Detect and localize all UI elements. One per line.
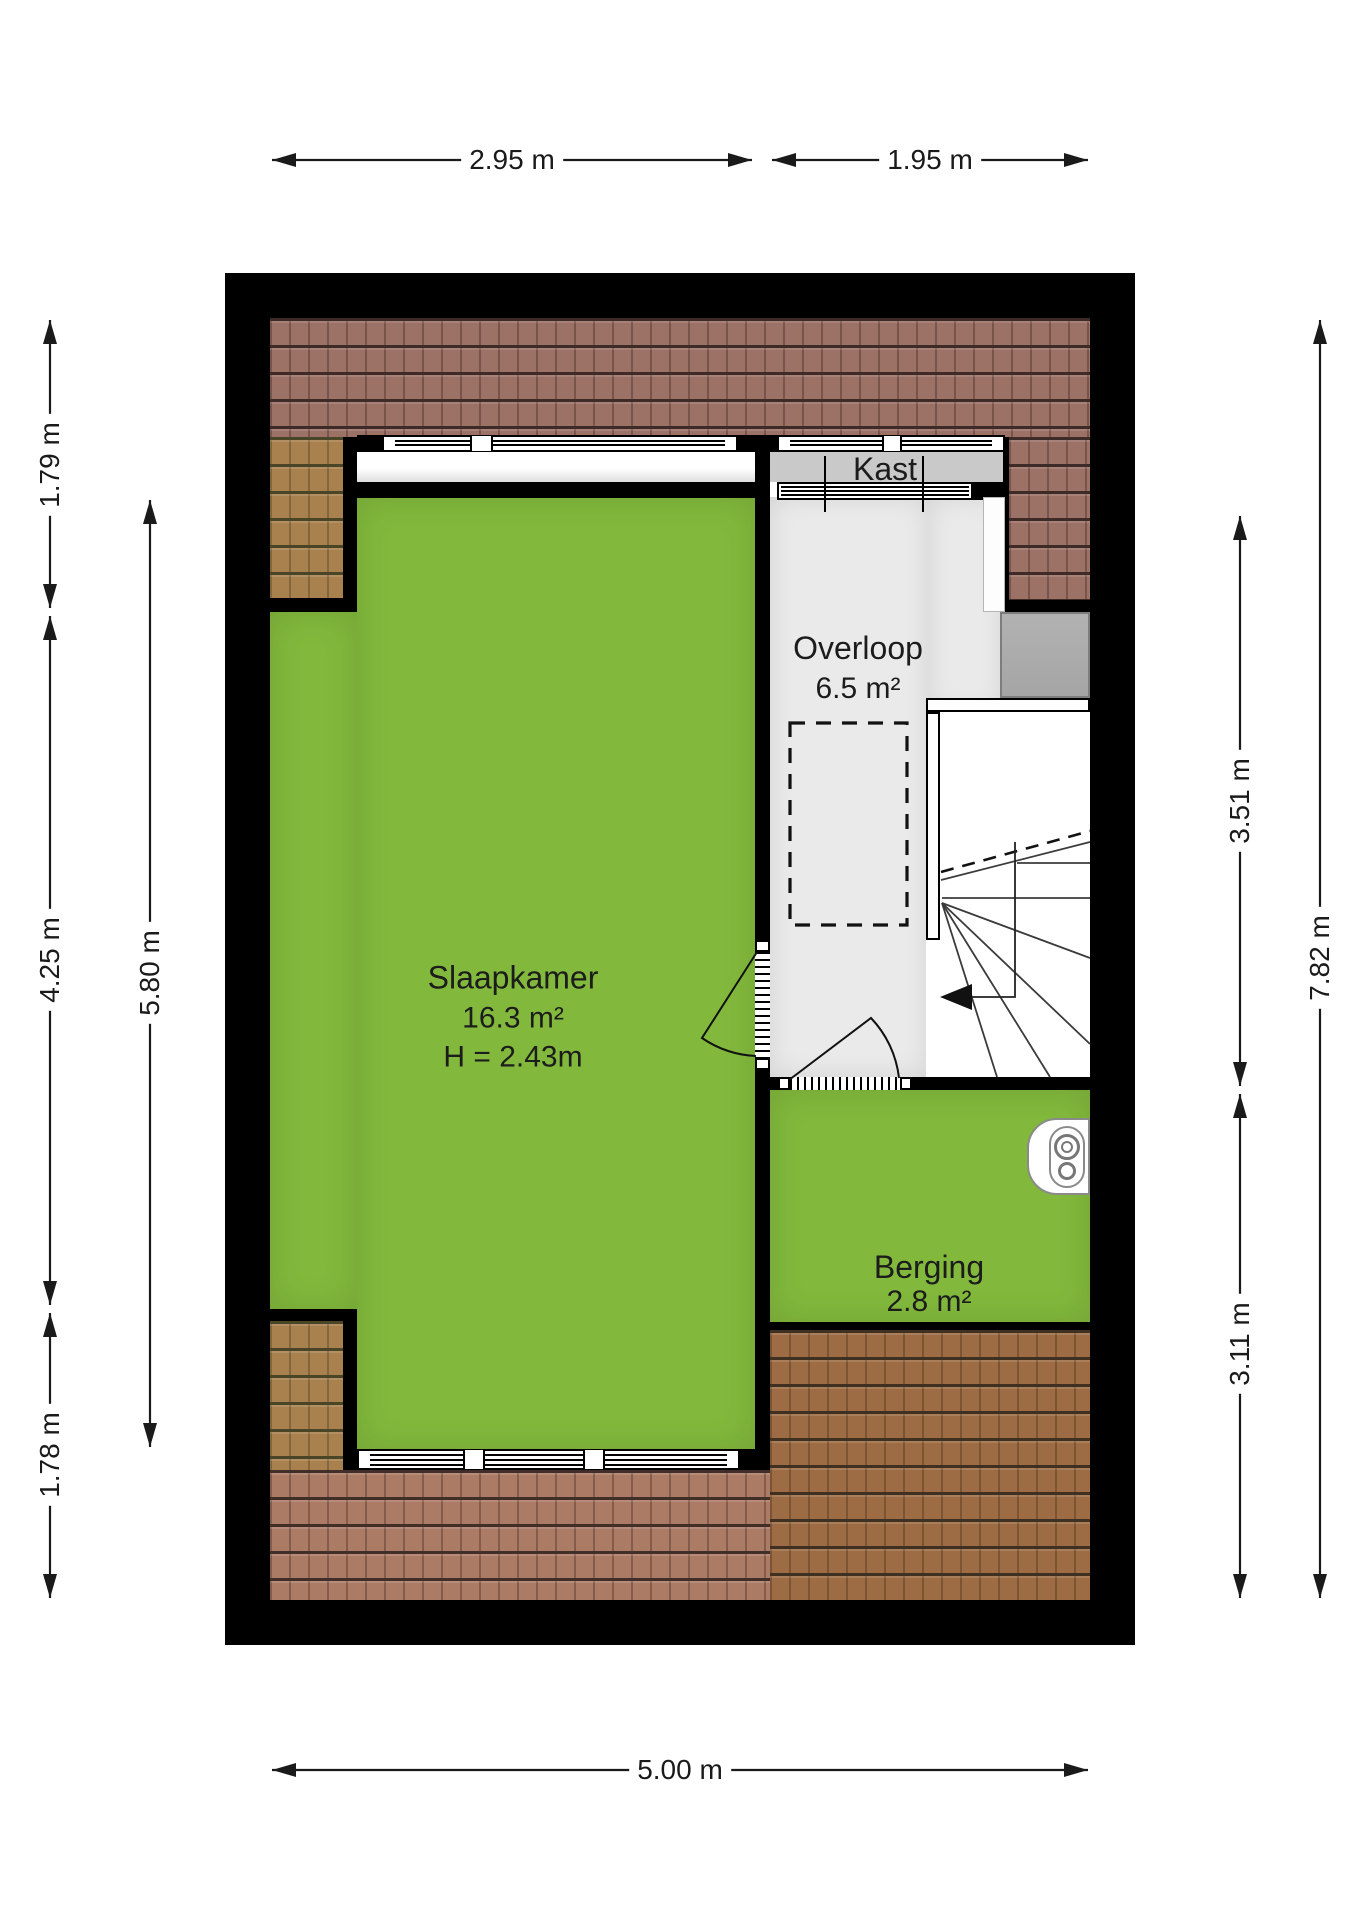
room-label-kast: Kast (853, 453, 917, 485)
roof-tiles-bottom-right (770, 1330, 1090, 1600)
dim-left-outer-top: 1.79 m (33, 414, 67, 516)
door-berging (790, 1077, 900, 1090)
room-name: Overloop (793, 628, 923, 669)
right-slope-bottom-wall (1005, 600, 1090, 612)
notch-right-wall (343, 1309, 357, 1470)
overloop-right-wall (983, 497, 1005, 612)
window-pillar (738, 435, 777, 452)
outer-wall-left (225, 273, 270, 1645)
dim-top-right: 1.95 m (879, 143, 981, 177)
outer-wall-top (225, 273, 1135, 318)
glazing-line (395, 440, 725, 442)
room-label-overloop: Overloop 6.5 m² (793, 628, 923, 708)
room-label-berging: Berging 2.8 m² (874, 1249, 984, 1319)
berging-bottom-wall (770, 1322, 1090, 1330)
dim-left-outer-bottom: 1.78 m (33, 1404, 67, 1506)
dim-right-outer: 7.82 m (1303, 907, 1337, 1009)
dim-left-inner: 5.80 m (133, 922, 167, 1024)
roof-tiles-right-slope (1009, 437, 1090, 600)
glazing-line (370, 1459, 727, 1461)
window-slaapkamer-top (382, 435, 738, 452)
door-post (778, 1077, 790, 1090)
door-line (781, 490, 969, 492)
roof-tiles-top-band (270, 318, 1090, 437)
boiler-drum (1049, 1126, 1085, 1188)
roof-tiles-left-notch (270, 1321, 343, 1470)
bottom-window-end-block (740, 1449, 770, 1470)
window-mullion (882, 436, 902, 451)
window-mullion (470, 436, 493, 451)
floorplan-canvas: 2.95 m 1.95 m 1.79 m 4.25 m 1.78 m 5.80 … (0, 0, 1358, 1920)
stairs-left-wall (926, 712, 940, 940)
staircase-floor (926, 712, 1090, 1077)
room-name: Slaapkamer (428, 958, 599, 999)
window-mullion (463, 1450, 485, 1469)
kast-tick-mark (824, 456, 826, 512)
glazing-line (370, 1454, 727, 1456)
dim-right-inner-top: 3.51 m (1223, 750, 1257, 852)
dim-bottom: 5.00 m (629, 1753, 731, 1787)
room-label-slaapkamer: Slaapkamer 16.3 m² H = 2.43m (428, 958, 599, 1077)
chimney-block (1000, 612, 1090, 698)
room-name: Berging (874, 1249, 984, 1285)
room-name: Kast (853, 453, 917, 485)
dim-top-left: 2.95 m (461, 143, 563, 177)
window-mullion (583, 1450, 605, 1469)
left-strip-bottom-wall (270, 598, 357, 612)
door-post (755, 940, 770, 952)
room-slaapkamer-floor-extension (270, 612, 357, 1309)
glazing-line (395, 444, 725, 446)
window-kast-top (777, 435, 1005, 452)
roof-tiles-bottom-left (270, 1470, 770, 1600)
left-strip-right-wall (343, 437, 357, 612)
dim-left-outer-middle: 4.25 m (33, 909, 67, 1011)
dim-right-inner-bottom: 3.11 m (1223, 1294, 1257, 1394)
room-height: H = 2.43m (428, 1038, 599, 1077)
boiler-icon (1027, 1118, 1090, 1195)
room-area: 6.5 m² (793, 669, 923, 708)
boiler-dial-small (1058, 1162, 1076, 1180)
room-overloop-floor (770, 497, 928, 1077)
roof-tiles-left-strip (270, 437, 343, 598)
glazing-line (370, 1464, 727, 1466)
outer-wall-right (1090, 273, 1135, 1645)
stairs-top-wall (926, 698, 1090, 712)
kast-tick-mark (922, 456, 924, 512)
corner-block (357, 435, 383, 452)
window-sill (357, 452, 755, 482)
boiler-dial-large (1054, 1134, 1080, 1160)
door-line (781, 494, 969, 496)
door-slaapkamer (755, 952, 770, 1058)
slaapkamer-top-wall (357, 482, 755, 498)
room-area: 2.8 m² (874, 1285, 984, 1319)
door-post (755, 1058, 770, 1070)
outer-wall-bottom (225, 1600, 1135, 1645)
room-area: 16.3 m² (428, 999, 599, 1038)
window-slaapkamer-bottom (357, 1449, 740, 1470)
door-post (900, 1077, 912, 1090)
